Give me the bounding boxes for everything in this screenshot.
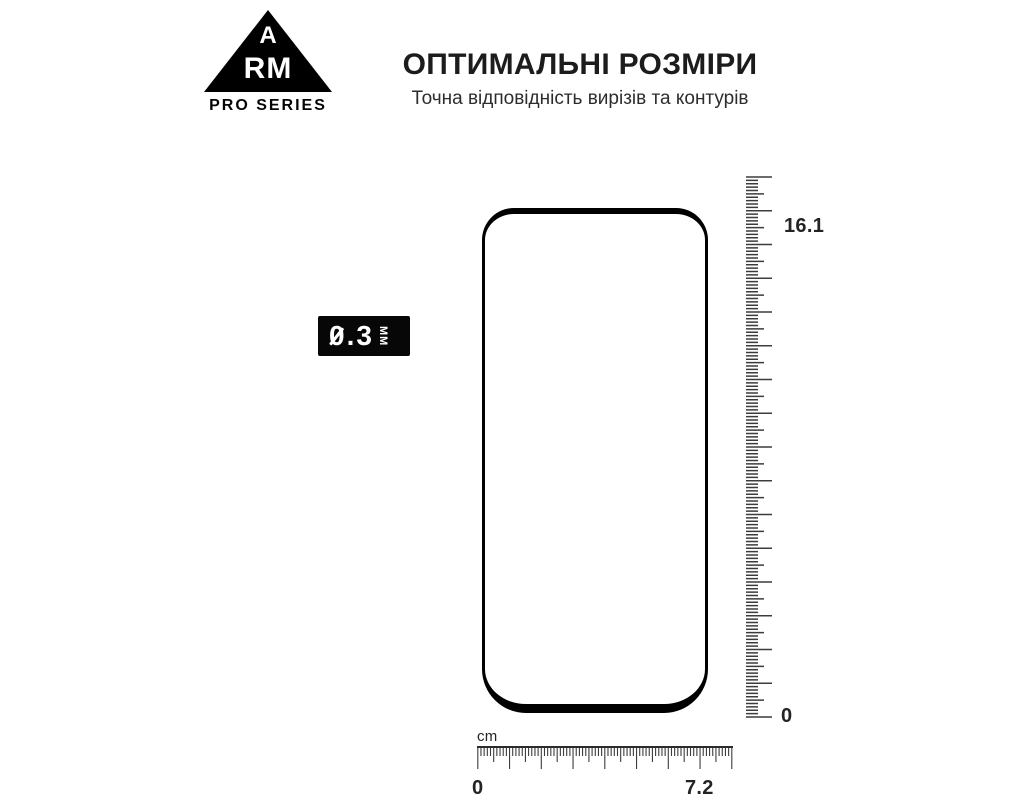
brand-letters-rm: RM [204,54,332,84]
poster: A RM PRO SERIES ОПТИМАЛЬНІ РОЗМІРИ Точна… [0,0,1024,800]
horizontal-ruler-end-label: 7.2 [685,778,714,798]
thickness-unit: ММ [377,326,388,346]
brand-tagline: PRO SERIES [198,98,338,114]
vertical-ruler [746,175,776,719]
horizontal-ruler [477,746,735,774]
vertical-ruler-max-label: 16.1 [784,216,824,236]
header: ОПТИМАЛЬНІ РОЗМІРИ Точна відповідність в… [370,48,790,111]
brand-letter-a: A [204,24,332,48]
horizontal-ruler-start-label: 0 [472,778,483,798]
horizontal-ruler-unit-label: cm [477,729,498,744]
page-title: ОПТИМАЛЬНІ РОЗМІРИ [370,48,790,82]
vertical-ruler-min-label: 0 [781,706,792,726]
thickness-badge: 0.3 ММ [318,316,410,356]
page-subtitle: Точна відповідність вирізів та контурів [370,87,790,111]
brand-logo: A RM PRO SERIES [204,10,332,114]
screen-protector-outline [482,208,708,713]
